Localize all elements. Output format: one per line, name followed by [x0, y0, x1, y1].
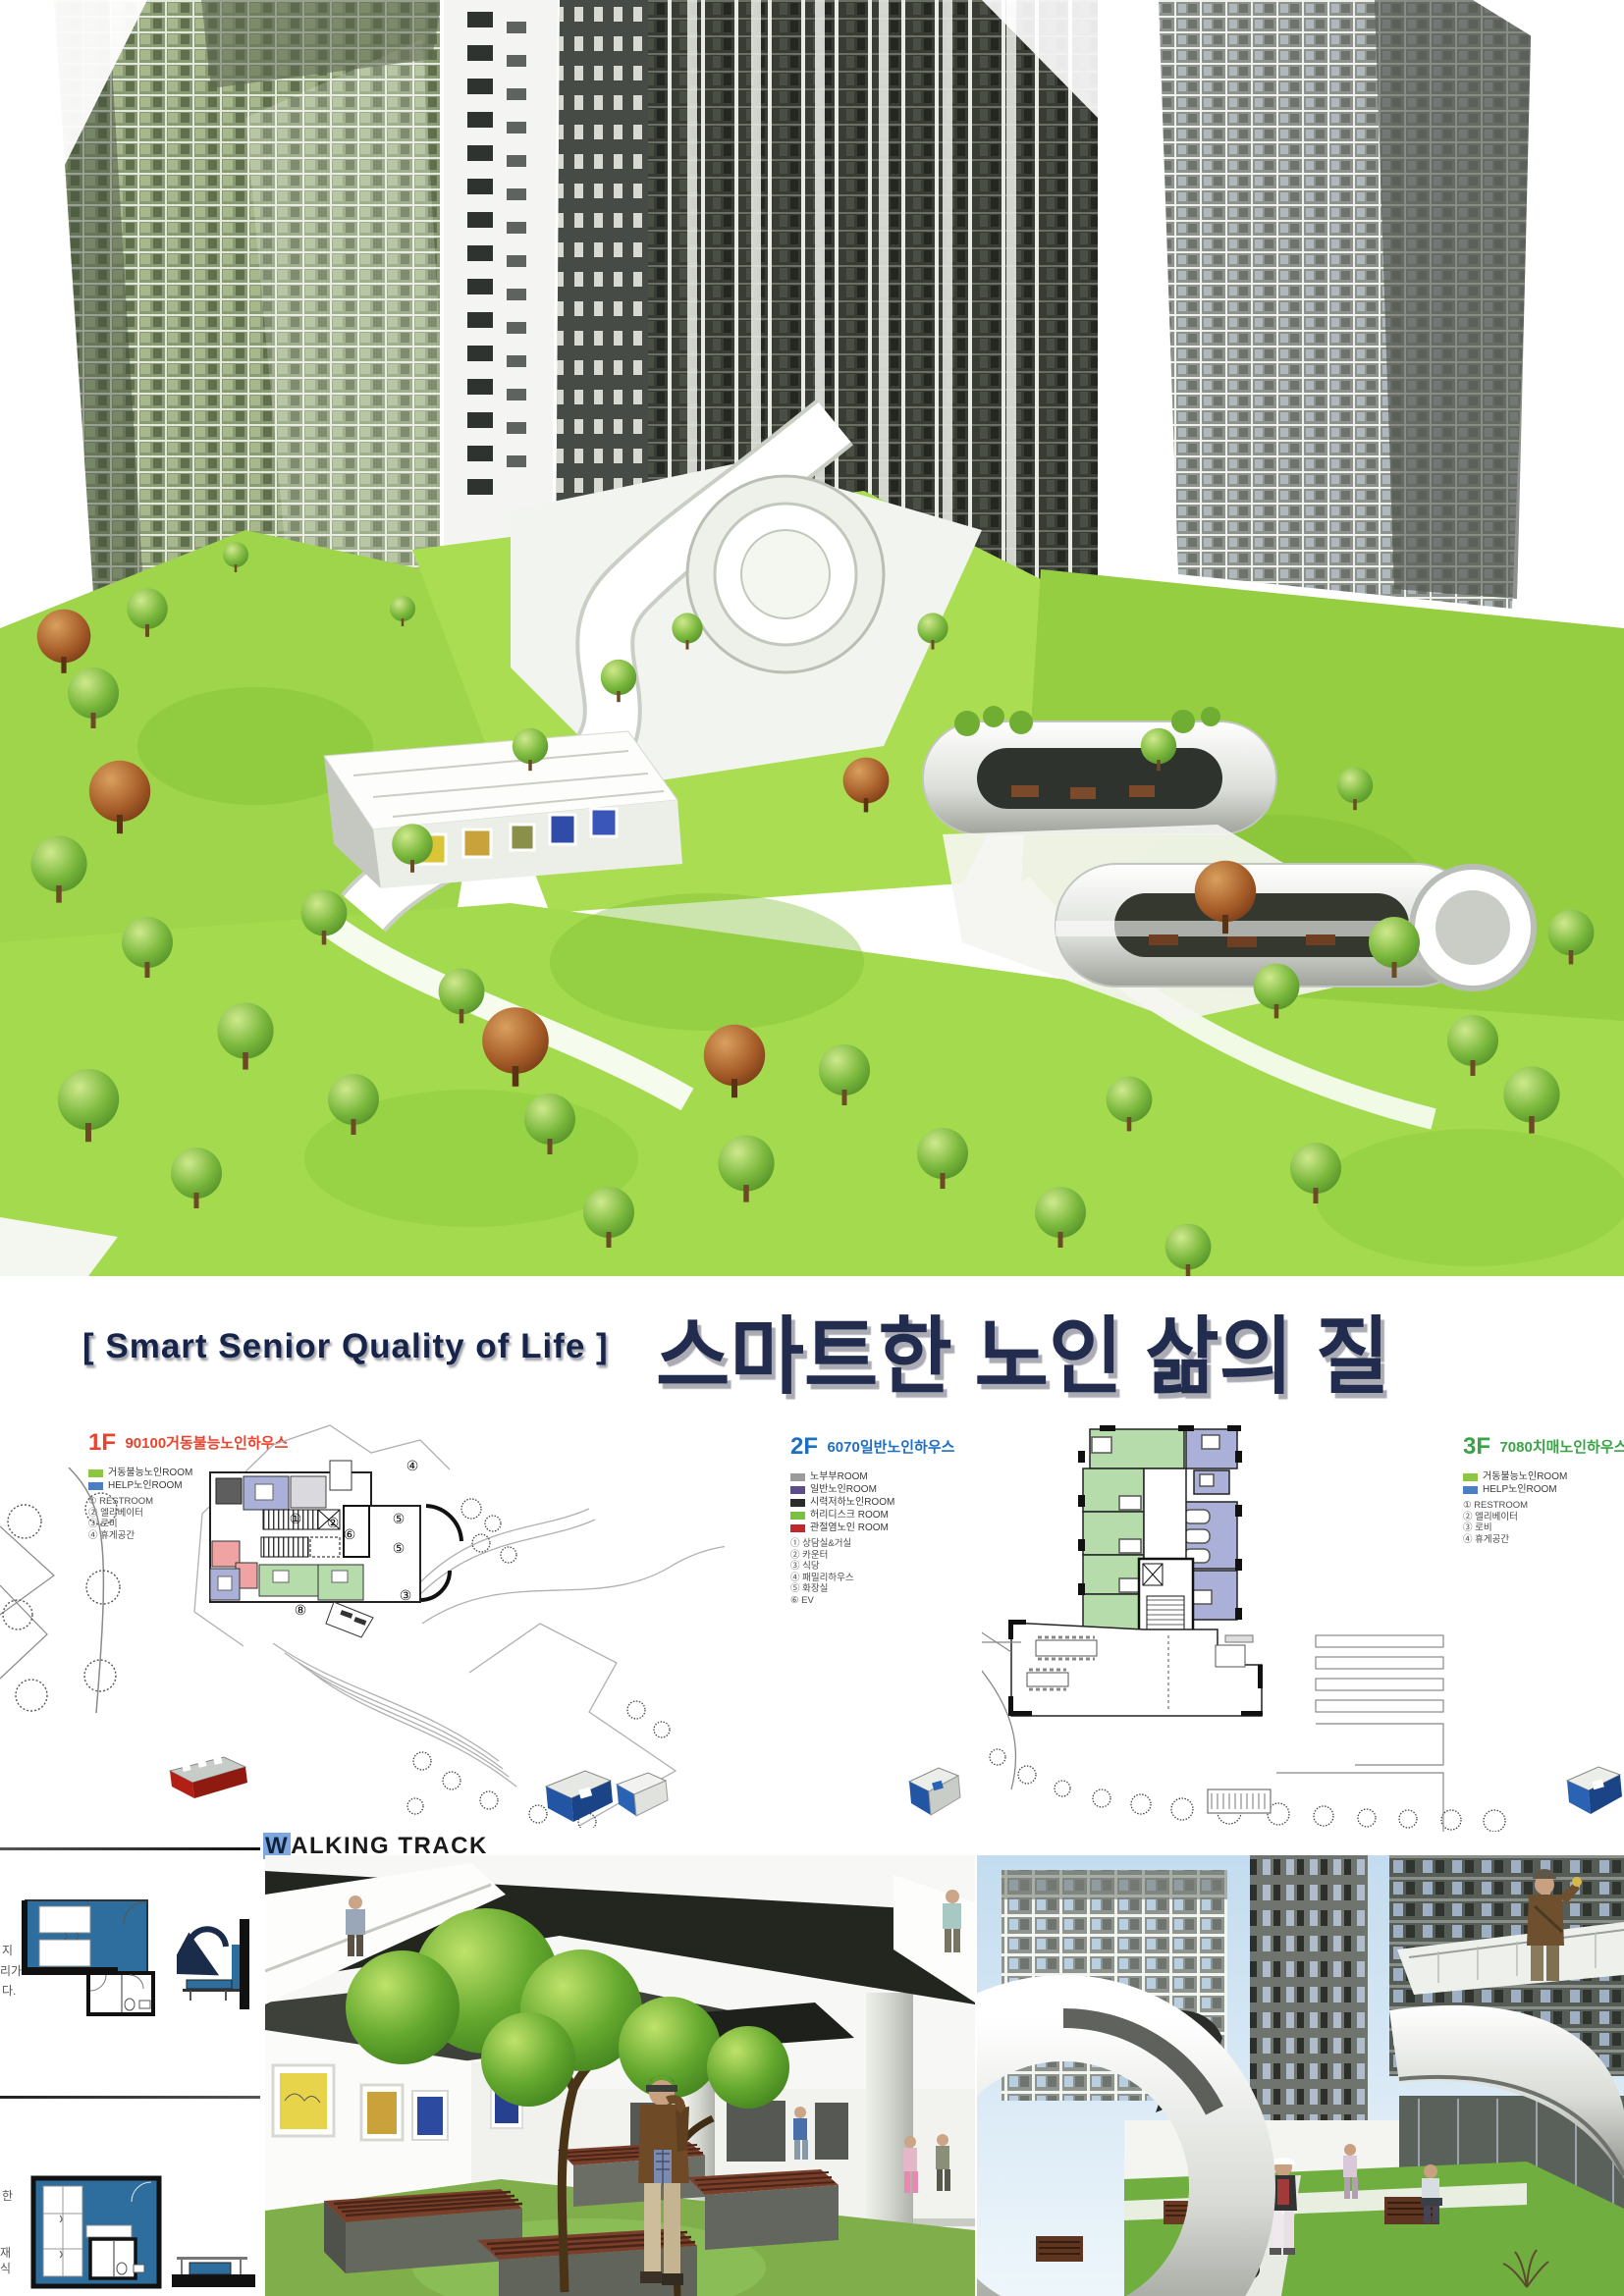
- tube-pavilion-rendering: [977, 1855, 1624, 2296]
- floor-label-1f: 1F: [88, 1429, 116, 1456]
- art-panel-blue: [417, 2097, 443, 2135]
- legend-swatch: [790, 1473, 805, 1481]
- floor-name-2f: 6070일반노인하우스: [827, 1439, 954, 1456]
- svg-text:④: ④: [406, 1458, 419, 1473]
- walking-track-rendering: [265, 1855, 975, 2296]
- podium: [1008, 1620, 1263, 1716]
- art-panel-yellow: [280, 2073, 327, 2129]
- left-column-divider: [0, 2096, 260, 2099]
- svg-text:⑤: ⑤: [393, 1540, 406, 1556]
- floorplan-tower-drawing: [982, 1412, 1532, 1832]
- pavilion: [324, 731, 682, 888]
- hero-rendering-svg: [0, 0, 1624, 1276]
- hero-rendering: [0, 0, 1624, 1276]
- unit-axon-blue-right: [1563, 1759, 1624, 1820]
- legend-swatch: [790, 1524, 805, 1532]
- svg-text:③: ③: [400, 1587, 412, 1603]
- svg-text:⑥: ⑥: [344, 1526, 356, 1542]
- note-fragment: 다.: [2, 1982, 16, 1999]
- presentation-board: [ Smart Senior Quality of Life ] 스마트한 노인…: [0, 0, 1624, 2296]
- note-fragment: 한: [2, 2187, 13, 2204]
- subtitle-english: [ Smart Senior Quality of Life ]: [82, 1327, 672, 1366]
- terraces: [1316, 1635, 1443, 1765]
- unit-axon-red: [165, 1753, 248, 1800]
- note-fragment: 식: [0, 2260, 11, 2276]
- svg-text:②: ②: [327, 1515, 340, 1530]
- floor-label-2f: 2F: [790, 1433, 818, 1460]
- bed-section-detail: [172, 2243, 255, 2292]
- unit-axon-blue-pair: [542, 1765, 670, 1826]
- site-plan-fragment-left: [0, 1468, 133, 1713]
- walking-track-rule: [0, 1847, 260, 1850]
- main-title-korean: 스마트한 노인 삶의 질: [656, 1288, 1624, 1411]
- svg-text:⑤: ⑤: [393, 1511, 406, 1526]
- note-fragment: 지: [2, 1942, 13, 1958]
- svg-text:①: ①: [290, 1511, 302, 1526]
- note-fragment: 재: [0, 2244, 11, 2261]
- unit-plan-upper: [20, 1895, 162, 2020]
- art-panel-gold: [367, 2092, 397, 2134]
- legend-swatch: [790, 1499, 805, 1507]
- legend-swatch: [790, 1486, 805, 1494]
- unit-plan-lower: [29, 2174, 165, 2292]
- fold-bench-section: [177, 1919, 260, 2012]
- legend-swatch: [790, 1512, 805, 1520]
- building-footprint: [210, 1461, 420, 1637]
- svg-text:⑧: ⑧: [295, 1602, 307, 1618]
- note-fragment: 리가: [0, 1962, 22, 1979]
- unit-axon-blue-small: [905, 1762, 962, 1821]
